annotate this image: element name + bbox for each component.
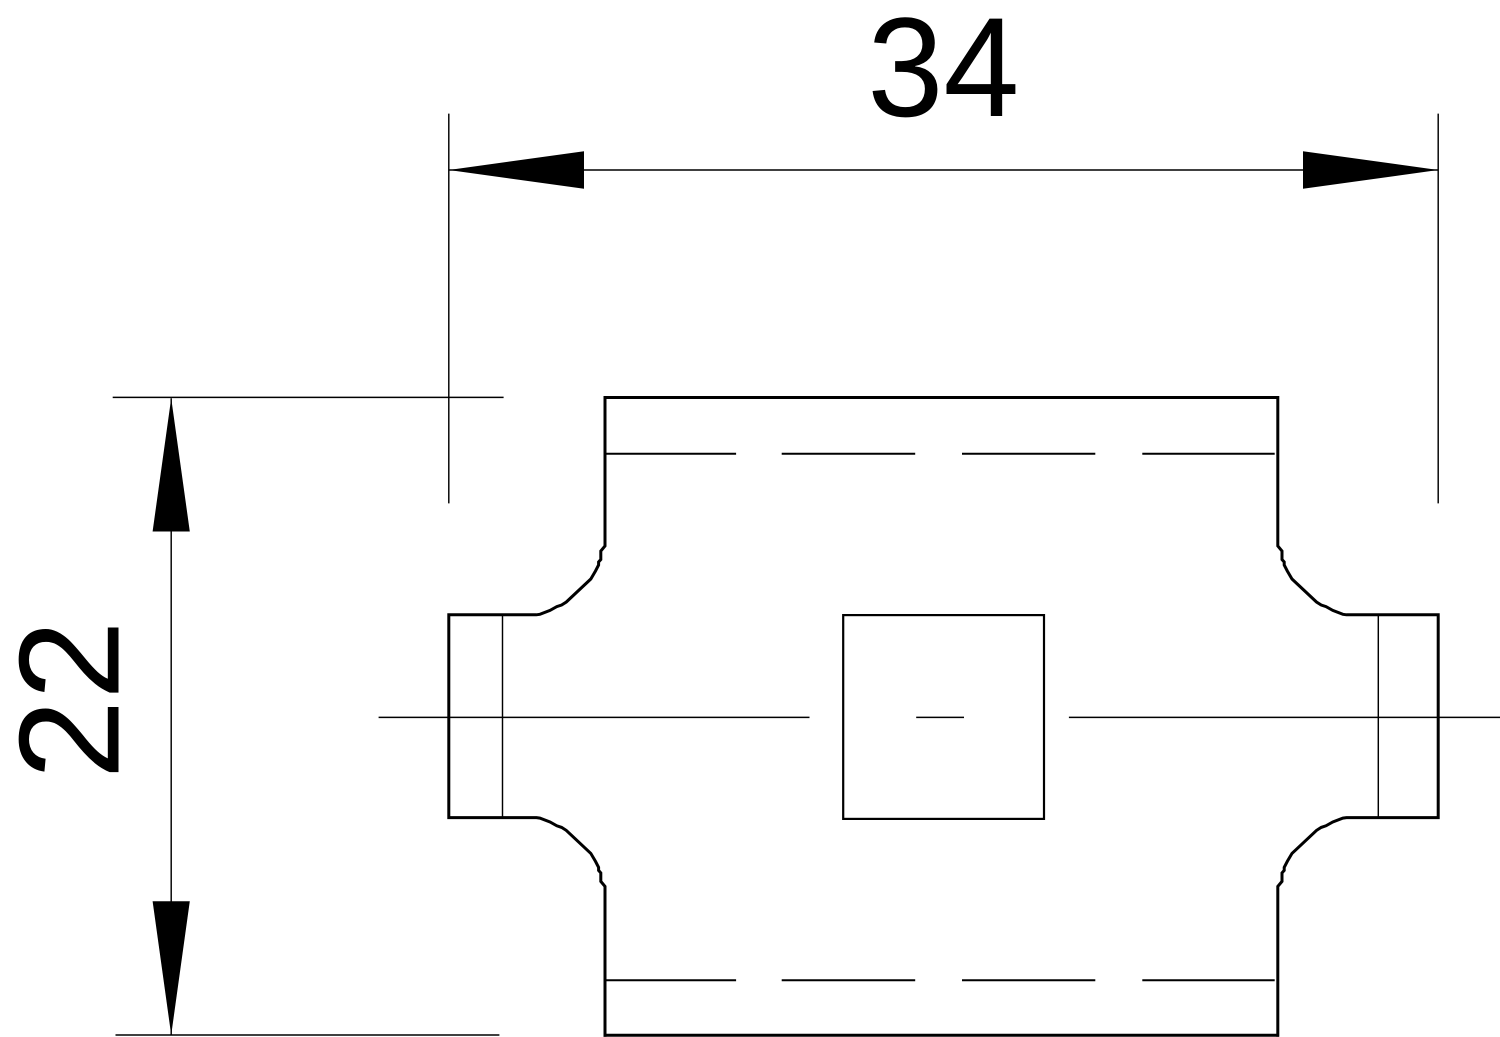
svg-text:34: 34: [867, 0, 1019, 146]
svg-text:22: 22: [0, 620, 150, 779]
